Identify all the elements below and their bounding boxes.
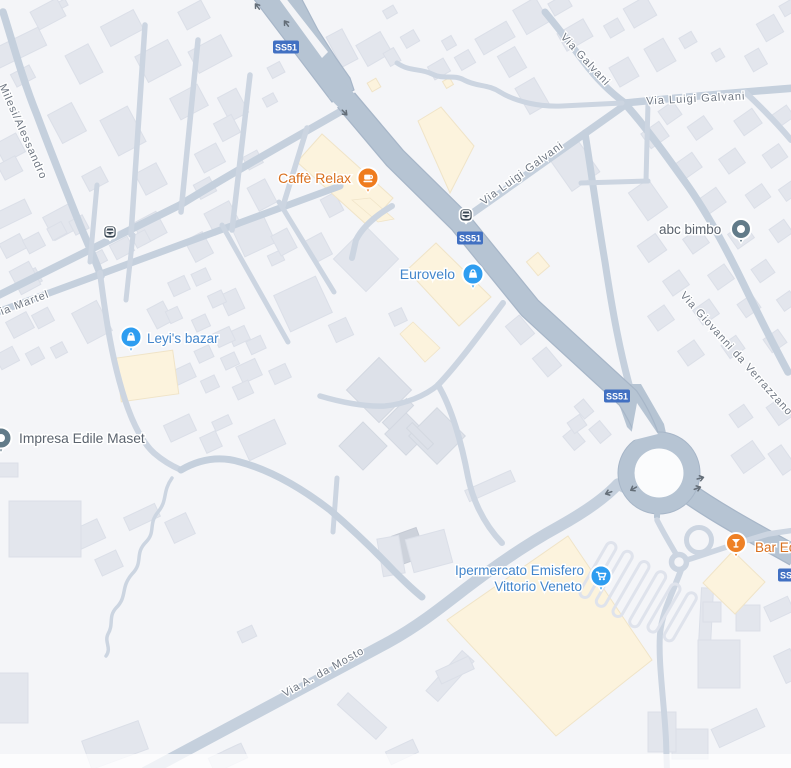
svg-text:abc bimbo: abc bimbo [659, 222, 721, 237]
svg-text:Vittorio Veneto: Vittorio Veneto [494, 579, 582, 594]
svg-text:SS51: SS51 [780, 571, 791, 581]
svg-text:Leyi's bazar: Leyi's bazar [147, 331, 219, 346]
svg-text:Impresa Edile Maset: Impresa Edile Maset [19, 431, 145, 446]
svg-text:Ipermercato Emisfero: Ipermercato Emisfero [455, 563, 584, 578]
svg-text:SS51: SS51 [606, 392, 628, 402]
svg-text:SS51: SS51 [459, 234, 481, 244]
svg-text:Bar Ec: Bar Ec [755, 540, 791, 555]
svg-text:SS51: SS51 [275, 43, 297, 53]
svg-text:Eurovelo: Eurovelo [400, 266, 455, 282]
svg-text:Caffè Relax: Caffè Relax [278, 170, 351, 186]
